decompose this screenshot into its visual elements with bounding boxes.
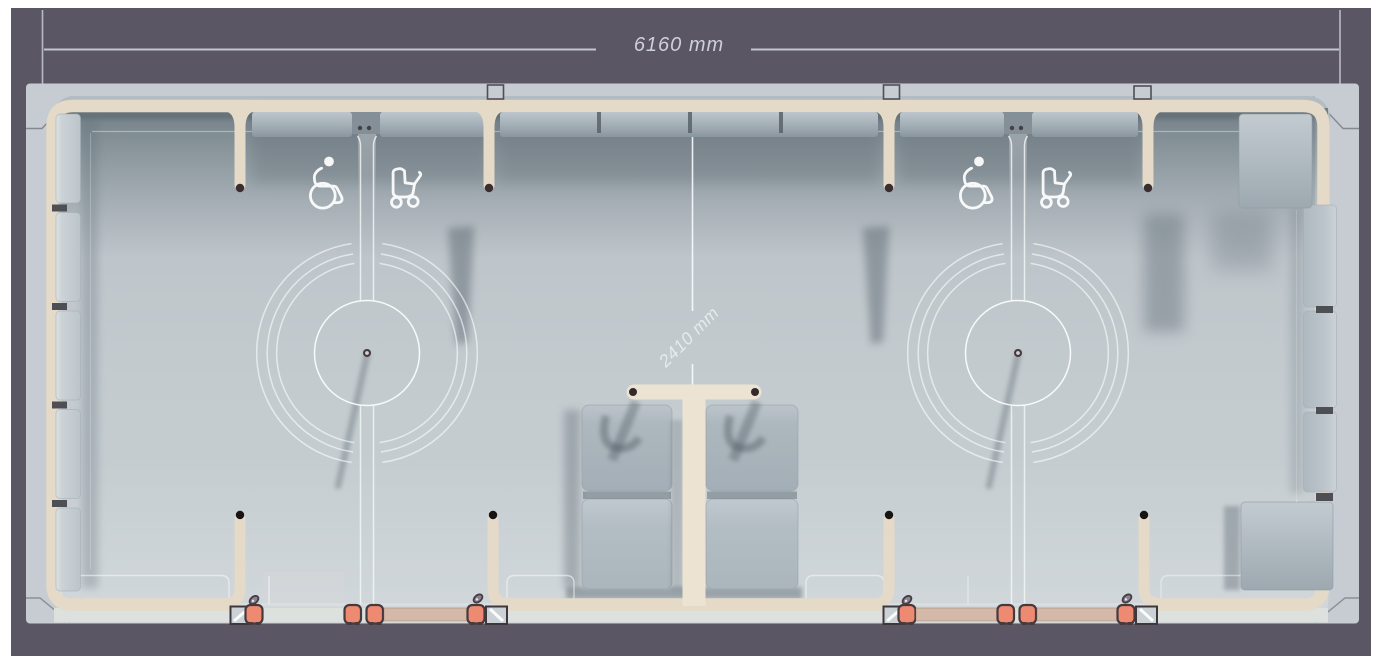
svg-text:6160 mm: 6160 mm <box>634 34 724 56</box>
